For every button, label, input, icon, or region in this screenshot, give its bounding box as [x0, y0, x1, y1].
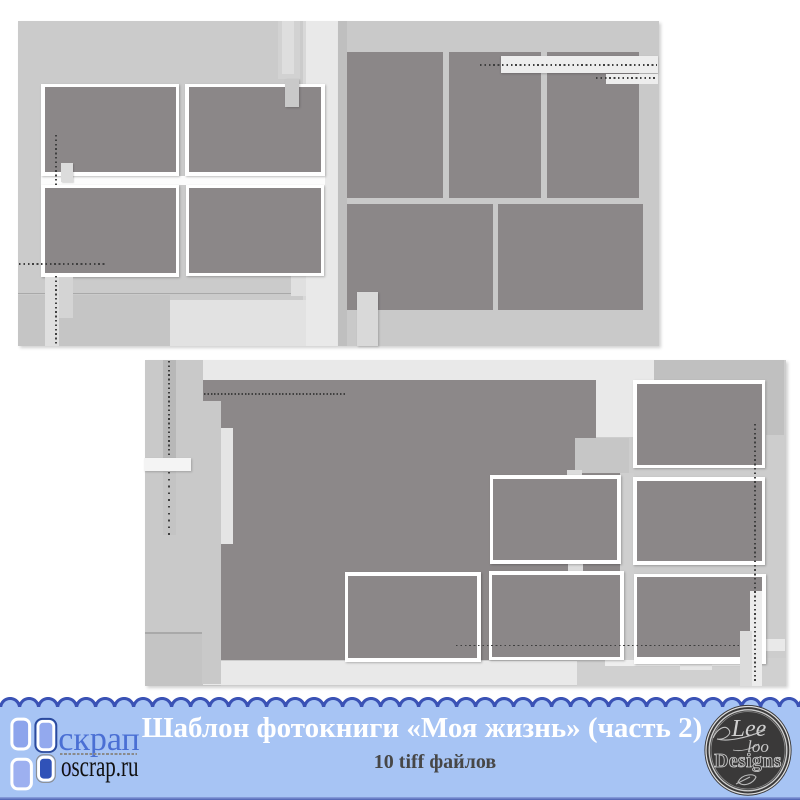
svg-text:Designs: Designs — [714, 751, 781, 772]
